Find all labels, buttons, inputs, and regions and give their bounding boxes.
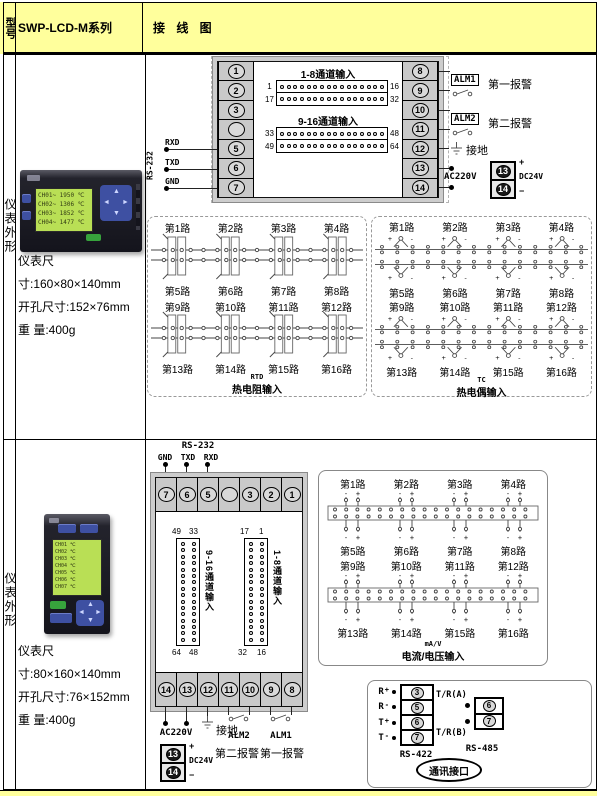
instrument-photo-vertical: CH01 ℃CH02 ℃CH03 ℃CH04 ℃CH05 ℃CH06 ℃CH07… [44,514,110,634]
left-strip-num-br: 48 [189,648,198,657]
pin-dot [260,625,264,629]
pin-dot [260,561,264,565]
terminal-cell: 5 [198,478,219,511]
pin-dot [373,132,377,136]
pin-dot [313,132,317,136]
terminal-cell: 9 [261,673,282,706]
pin-dot [333,144,337,148]
pin-dot [380,97,384,101]
terminal-cell: 12 [403,140,437,159]
pin-dot [367,85,371,89]
channel-label: 第13路 [326,625,380,640]
dc24v-terminals: 1314 [490,161,516,199]
terminal-14: 14 [166,766,181,779]
pin-dot [380,132,384,136]
terminal-cell: 10 [403,101,437,120]
terminal-3: 3 [411,687,424,699]
terminal-cell: 3 [240,478,261,511]
terminal-10: 10 [412,103,429,118]
svg-text:-: - [344,616,348,624]
svg-text:+: + [410,534,414,542]
pin-dot [260,555,264,559]
pin-dot [192,561,196,565]
terminal-cell: 12 [198,673,219,706]
terminal-cell: 1 [282,478,302,511]
ac-line-a [439,168,453,169]
strip-num: 48 [388,129,401,138]
model-label: 型号 [3,17,16,39]
pin-dot [287,85,291,89]
terminal-cell: 8 [282,673,302,706]
brand-logo [27,175,40,181]
svg-text:-: - [452,572,456,580]
terminal-2: 2 [263,487,280,502]
pin-dot [333,85,337,89]
pin-dot [373,85,377,89]
strip-row: 1 16 [263,80,401,93]
ac-line-b [186,707,187,724]
pin-dot [300,85,304,89]
terminal-11: 11 [412,122,429,137]
pin-dot [192,619,196,623]
pin-dot [192,625,196,629]
text-line: 开孔尺寸:76×152mm [18,686,144,709]
pin-rxd: RXD [165,138,179,147]
svg-text:+: + [518,490,522,498]
pin-dot [313,144,317,148]
pin-dot [249,574,253,578]
pin-dot [192,587,196,591]
arrow-right-icon: ► [122,199,129,206]
svg-text:+: + [495,274,499,282]
lcd-lines: CH01~ 1950 ℃CH02~ 1306 ℃CH03~ 1852 ℃CH04… [38,191,90,227]
terminal-ladder-left: 123567 [218,62,254,197]
text-line: 仪表尺 [18,640,144,663]
terminal-cell: 6 [219,159,253,178]
strip-row: 33 48 [263,127,401,140]
right-strip-title: 1-8通道输入 [271,550,284,646]
specs-lines: 仪表尺寸:160×80×140mm开孔尺寸:152×76mm重 量:400g [18,250,144,342]
pin-dot [192,631,196,635]
pin-dot [307,85,311,89]
svg-text:+: + [549,235,553,243]
terminal-8: 8 [284,682,301,697]
side-label-row1: 仪表外形 [3,198,16,254]
terminal-6: 6 [179,487,196,502]
pin-dot [249,555,253,559]
ground-line [439,148,449,149]
pin-dot [293,97,297,101]
svg-text:-: - [452,616,456,624]
pin-dot [181,548,185,552]
svg-text:-: - [517,235,521,243]
svg-text:-: - [463,354,467,362]
front-button [58,524,76,533]
svg-text:+: + [442,235,446,243]
pin-dot [320,132,324,136]
terminal-blank [221,487,238,502]
terminal-cell: 14 [162,764,184,780]
pin-dot [280,85,284,89]
pin-dot [327,85,331,89]
terminal-1: 1 [228,64,245,79]
svg-text:-: - [506,534,510,542]
terminal-cell: 10 [240,673,261,706]
svg-text:+: + [495,315,499,323]
specs-row1: 仪表尺寸:160×80×140mm开孔尺寸:152×76mm重 量:400g [18,250,144,342]
pin-dot [181,561,185,565]
pin-dot [260,548,264,552]
pin-dot [327,97,331,101]
terminal-cell: 2 [219,81,253,100]
alm1-line-b [439,90,450,91]
pin-dot [380,85,384,89]
channel-label: 第7路 [257,283,310,298]
terminal-13: 13 [166,748,181,761]
specs-row2: 仪表尺寸:80×160×140mm开孔尺寸:76×152mm重 量:400g [18,640,144,732]
pin-dot [327,144,331,148]
svg-text:+: + [356,572,360,580]
svg-text:-: - [506,572,510,580]
rtd-labels-5-8: 第5路第6路第7路第8路 [151,283,363,298]
terminal-7: 7 [228,180,245,195]
group2-title: 9-16通道输入 [253,113,403,128]
rtd-wiring-band [151,311,363,359]
terminal-cell [219,120,253,139]
pin-dot [353,144,357,148]
rs485-a-dot [465,703,470,708]
arrow-left-icon: ◄ [78,609,85,616]
rs422-pin-labels: R+R-T+T- [370,684,396,746]
rs232-label: RS-232 [146,134,155,198]
gnd-line [165,188,217,189]
pin-dot [249,542,253,546]
pin-dot-column [192,542,196,642]
pin-dot [192,555,196,559]
pin-dot [293,132,297,136]
svg-text:+: + [388,354,392,362]
pin-dot [249,568,253,572]
terminal-dots [276,127,388,140]
terminal-8: 8 [412,64,429,79]
ac-line-a [165,707,166,724]
rs485-terminals: 67 [474,697,504,730]
pin-dot [287,132,291,136]
rtd-wiring-band [151,233,363,281]
tc-labels-5-8: 第5路第6路第7路第8路 [375,285,588,300]
alm1-text: 第一报警 [260,745,304,761]
group1-title: 1-8通道输入 [253,66,403,81]
pin-dot [249,619,253,623]
right-strip-num-bl: 32 [238,648,247,657]
svg-text:+: + [356,490,360,498]
terminal-cell: 13 [492,163,514,181]
dc-plus: + [519,157,524,167]
channel-label: 第6路 [380,543,434,558]
terminal-14: 14 [412,180,429,195]
terminal-cell: 3 [219,101,253,120]
txd-line [165,169,217,170]
svg-text:+: + [410,572,414,580]
text-line: CH02~ 1306 ℃ [38,200,90,209]
svg-text:+: + [518,616,522,624]
strip-num: 17 [263,95,276,104]
tc-wiring-band: +-+-+-+-+-+-+-+- [375,311,588,363]
strip-num: 49 [263,142,276,151]
terminal-7: 7 [411,732,424,744]
pin-dot [192,568,196,572]
pin-dot [181,612,185,616]
terminal-3: 3 [242,487,259,502]
terminal-13: 13 [179,682,196,697]
svg-text:-: - [506,490,510,498]
pin-dot [300,97,304,101]
front-button [50,613,72,623]
pin-dot [181,606,185,610]
terminal-cell: 14 [156,673,177,706]
strip-row: 49 64 [263,140,401,153]
pin-dot [360,132,364,136]
pin-dot-column [260,542,264,642]
header-wiring-cell: 接 线 图 [143,2,597,54]
svg-text:-: - [344,490,348,498]
channel-label: 第16路 [487,625,541,640]
rs422-terminals: 3567 [400,684,434,746]
svg-text:-: - [398,616,402,624]
pin-dot [300,144,304,148]
svg-text:+: + [442,315,446,323]
pin-dot [287,97,291,101]
pin-dot [340,144,344,148]
alm2-box: ALM2 [451,113,479,125]
alm2-line-a [439,110,450,111]
pin-dot [373,144,377,148]
instrument-photo-horizontal: CH01~ 1950 ℃CH02~ 1306 ℃CH03~ 1852 ℃CH04… [20,170,142,252]
text-line: 仪表尺 [18,250,144,273]
pin-dot [181,638,185,642]
channel-label: 第8路 [487,543,541,558]
svg-text:-: - [506,616,510,624]
text-line: CH02 ℃ [55,549,99,556]
terminal-cell: 1 [219,62,253,81]
pin-dot [340,85,344,89]
pin-dot [353,85,357,89]
strip-row: 17 32 [263,93,401,106]
channel-strip-9-16 [176,538,200,646]
pin-dot [367,132,371,136]
pin-dot [367,97,371,101]
pin-dot [181,580,185,584]
pin-dot [260,542,264,546]
svg-text:-: - [398,572,402,580]
text-line: 重 量:400g [18,709,144,732]
relay-contact-icon [227,714,250,723]
pin-dot [260,619,264,623]
channel-label: 第8路 [535,285,588,300]
arrow-right-icon: ► [95,609,102,616]
arrow-keypad: ▲ ◄ ► ▼ [100,185,132,221]
svg-text:-: - [517,354,521,362]
pin-dot [260,638,264,642]
rtd-caption-cn: 热电阻输入 [147,381,367,396]
vent-slots [136,184,140,230]
svg-text:-: - [410,354,414,362]
mav-labels-13-16: 第13路第14路第15路第16路 [326,625,540,640]
terminal-cell: 2 [261,478,282,511]
pin-dot [181,631,185,635]
svg-text:-: - [410,235,414,243]
svg-text:-: - [517,274,521,282]
svg-text:+: + [388,274,392,282]
mav-caption-en: mA/V [318,640,548,648]
pin-dot [280,97,284,101]
right-strip-num-tl: 17 [240,527,249,536]
svg-text:+: + [410,490,414,498]
txd-line [186,464,187,477]
text-line: 寸:160×80×140mm [18,273,144,296]
relay-contact-icon [269,714,292,723]
terminal-cell: 5 [402,701,432,716]
channel-strip-1-8 [244,538,268,646]
channel-label: 第7路 [433,543,487,558]
left-strip-num-tl: 49 [172,527,181,536]
terminal-3: 3 [228,103,245,118]
pin-dot [347,144,351,148]
datasheet-page: 型号 SWP-LCD-M系列 接 线 图 仪表外形 仪表外形 CH01~ 195… [0,0,600,796]
svg-text:-: - [398,534,402,542]
rtd-caption-en: RTD [147,373,367,381]
pin-dot [320,97,324,101]
svg-text:-: - [410,315,414,323]
text-line: CH01 ℃ [55,542,99,549]
arrow-up-icon: ▲ [113,188,120,195]
channel-label: 第8路 [310,283,363,298]
text-line: 开孔尺寸:152×76mm [18,296,144,319]
terminal-5: 5 [411,702,424,714]
terminal-12: 12 [412,141,429,156]
text-line: CH01~ 1950 ℃ [38,191,90,200]
rs232-label: RS-232 [166,441,230,451]
svg-text:+: + [495,354,499,362]
svg-text:+: + [464,616,468,624]
svg-text:-: - [463,315,467,323]
pin-dot [287,144,291,148]
terminal-dots [276,140,388,153]
svg-text:+: + [388,235,392,243]
svg-text:+: + [464,490,468,498]
terminal-cell: 13 [403,159,437,178]
text-line: CH05 ℃ [55,570,99,577]
pin-dot [260,600,264,604]
series-title: SWP-LCD-M系列 [18,19,112,36]
footer-strip [0,790,597,796]
lcd-display: CH01~ 1950 ℃CH02~ 1306 ℃CH03~ 1852 ℃CH04… [35,188,93,232]
terminal-cell: 11 [403,120,437,139]
right-strip-num-tr: 1 [259,527,263,536]
alm2-text: 第二报警 [215,745,259,761]
terminal-9: 9 [412,83,429,98]
pin-dot [249,612,253,616]
terminal-cell: 6 [177,478,198,511]
svg-text:-: - [410,274,414,282]
ground-icon [201,716,214,729]
terminal-dots [276,80,388,93]
front-button [80,524,98,533]
gnd-line [165,464,166,477]
text-line: 重 量:400g [18,319,144,342]
channel-label: 第6路 [428,285,481,300]
terminal-cell: 13 [177,673,198,706]
side-label-row2: 仪表外形 [3,572,16,628]
mav-wiring-band: -+-+-+-+-+-+-+-+ [326,570,540,624]
lcd-display: CH01 ℃CH02 ℃CH03 ℃CH04 ℃CH05 ℃CH06 ℃CH07… [52,539,102,596]
pin-dot [380,144,384,148]
pin-dot [293,144,297,148]
terminal-cell: 13 [162,746,184,764]
svg-text:+: + [518,572,522,580]
left-strip-num-bl: 64 [172,648,181,657]
pin-dot [181,555,185,559]
pin-dot [347,132,351,136]
terminal-blank [228,122,245,137]
pin-dot-column [249,542,253,642]
channel-label: 第5路 [326,543,380,558]
pin-dot [280,144,284,148]
channel-label: 第6路 [204,283,257,298]
pin-rxd: RXD [198,453,224,462]
terminal-7: 7 [158,487,175,502]
svg-text:-: - [452,534,456,542]
confirm-button [50,601,66,609]
left-strip-title: 9-16通道输入 [203,550,216,646]
pin-dot [260,587,264,591]
svg-text:-: - [463,274,467,282]
ground-icon [450,142,463,155]
pin-dot [300,132,304,136]
relay-contact-icon [451,89,474,98]
pin-dot [327,132,331,136]
header-model-cell: 型号 [3,2,16,54]
lcd-lines: CH01 ℃CH02 ℃CH03 ℃CH04 ℃CH05 ℃CH06 ℃CH07… [55,542,99,591]
pin-dot [192,612,196,616]
pin-dot [192,638,196,642]
pin-dot [260,568,264,572]
terminal-ladder-bottom: 141312111098 [156,672,302,706]
terminal-cell: 3 [402,686,432,701]
pin-dot [192,593,196,597]
mav-labels-5-8: 第5路第6路第7路第8路 [326,543,540,558]
terminal-12: 12 [200,682,217,697]
wiring-title: 接 线 图 [153,19,216,36]
pin-dot [249,600,253,604]
svg-text:+: + [442,354,446,362]
channel-strip-1: 1 16 17 32 [263,80,401,106]
pin-dot [260,580,264,584]
header-series-cell: SWP-LCD-M系列 [16,2,143,54]
pin-dot [192,548,196,552]
svg-text:-: - [571,235,575,243]
dc-minus: − [189,770,194,780]
svg-text:+: + [388,315,392,323]
svg-text:+: + [549,315,553,323]
tc-caption-en: TC [371,376,592,384]
pin-dot [249,561,253,565]
pin-dot [373,97,377,101]
terminal-cell: 14 [492,181,514,197]
terminal-cell: 7 [219,179,253,197]
pin-dot [360,144,364,148]
pin-dot [260,612,264,616]
